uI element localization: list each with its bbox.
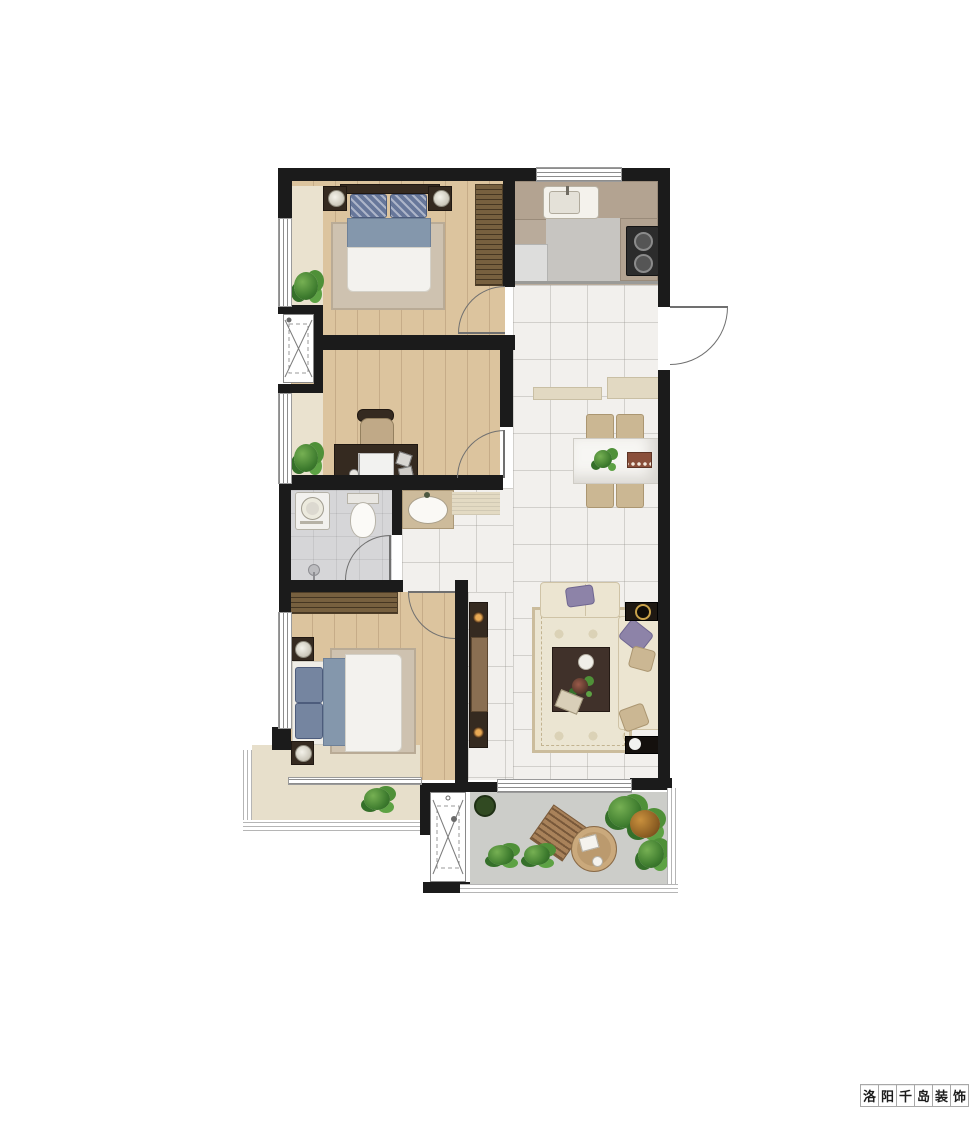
bathroom-door-leaf bbox=[389, 535, 391, 580]
bed-master-duvet bbox=[345, 654, 402, 752]
utility-shaft-south bbox=[430, 792, 466, 882]
washer-drum-icon bbox=[301, 497, 324, 520]
wall-bedrooms-divider bbox=[317, 335, 515, 350]
nightstand-lamp-icon bbox=[433, 190, 450, 207]
terrace-bush bbox=[524, 845, 550, 865]
wall-west-mid bbox=[279, 482, 291, 612]
kitchen-center-floor bbox=[546, 218, 620, 281]
coffee-table-plate-icon bbox=[578, 654, 594, 670]
bay-window-study bbox=[278, 393, 292, 484]
kitchen-pass-line bbox=[513, 281, 658, 284]
wall-top-west bbox=[278, 168, 536, 181]
watermark-char: 阳 bbox=[878, 1084, 897, 1107]
sofa-pillow-purple bbox=[565, 584, 596, 608]
wall-corner-sw bbox=[272, 727, 291, 750]
washer-panel-icon bbox=[300, 521, 323, 524]
toilet-bowl bbox=[350, 502, 376, 538]
tea-tray bbox=[627, 452, 652, 468]
bay-plant bbox=[294, 272, 318, 300]
entry-door-leaf bbox=[670, 306, 728, 308]
bed-pillow bbox=[350, 194, 387, 218]
bed-north-duvet bbox=[347, 247, 431, 292]
wall-shaft-west-bottom bbox=[278, 384, 323, 393]
candle-lamp-icon bbox=[473, 727, 484, 738]
wall-bathroom-north bbox=[279, 475, 503, 490]
floor-plan-canvas: 洛 阳 千 岛 装 饰 bbox=[0, 0, 972, 1122]
balcony-plant bbox=[364, 788, 390, 810]
bed-pillow bbox=[295, 667, 323, 703]
wall-east-top bbox=[658, 168, 670, 307]
bedroom-master-door-leaf bbox=[408, 591, 455, 593]
nightstand-lamp-icon bbox=[295, 745, 312, 762]
terrace-pot bbox=[474, 795, 496, 817]
terrace-cup-icon bbox=[592, 856, 603, 867]
basin-faucet-icon bbox=[424, 492, 430, 498]
wash-basin bbox=[408, 496, 448, 524]
bed-master-blanket bbox=[323, 658, 347, 746]
window-master-balcony bbox=[288, 777, 422, 785]
wall-east-bottom-corner bbox=[630, 778, 672, 790]
nightstand-lamp-icon bbox=[295, 641, 312, 658]
brand-watermark: 洛 阳 千 岛 装 饰 bbox=[861, 1084, 969, 1107]
candle-lamp-icon bbox=[473, 612, 484, 623]
dining-chair bbox=[616, 480, 644, 508]
bed-pillow bbox=[295, 703, 323, 739]
coffee-table-flowers bbox=[572, 678, 588, 694]
watermark-char: 岛 bbox=[914, 1084, 933, 1107]
balcony-railing-west bbox=[243, 750, 252, 830]
kitchen-faucet-icon bbox=[566, 186, 569, 195]
wall-bathroom-east bbox=[392, 490, 402, 535]
window-master-west bbox=[278, 612, 292, 729]
watermark-char: 洛 bbox=[860, 1084, 879, 1107]
wall-master-north bbox=[279, 580, 403, 592]
terrace-bush bbox=[488, 845, 514, 865]
entry-doormat bbox=[607, 377, 660, 399]
dining-chair bbox=[586, 480, 614, 508]
balcony-railing-south bbox=[243, 820, 420, 831]
vanity-mat bbox=[452, 492, 500, 515]
dining-plant bbox=[594, 450, 612, 468]
utility-shaft-west bbox=[283, 314, 314, 383]
wall-corner-nw bbox=[278, 168, 292, 218]
wall-shaft-south-left bbox=[420, 783, 430, 835]
study-door-leaf bbox=[503, 430, 505, 478]
bedroom-north-door-leaf bbox=[458, 332, 505, 334]
nightstand-lamp-icon bbox=[328, 190, 345, 207]
stove-burner-icon bbox=[634, 232, 653, 251]
terrace-railing-south bbox=[460, 884, 678, 893]
side-table-lamp-icon bbox=[635, 604, 651, 620]
tv-cabinet-wood bbox=[471, 637, 488, 712]
bay-window-bedroom-north bbox=[278, 218, 292, 307]
wall-east-main bbox=[658, 370, 670, 782]
watermark-char: 饰 bbox=[950, 1084, 969, 1107]
entry-door-swing bbox=[670, 307, 728, 365]
window-living-terrace bbox=[497, 779, 632, 793]
balcony-floor bbox=[252, 745, 420, 828]
terrace-bush bbox=[630, 810, 660, 838]
bay-plant bbox=[294, 444, 318, 472]
watermark-char: 装 bbox=[932, 1084, 951, 1107]
wall-bedroom-north-east bbox=[503, 168, 515, 287]
watermark-char: 千 bbox=[896, 1084, 915, 1107]
terrace-railing-east bbox=[667, 788, 678, 893]
speaker-ball-icon bbox=[629, 738, 641, 750]
bed-north-blanket bbox=[347, 218, 431, 249]
wall-study-east bbox=[500, 350, 513, 427]
bed-pillow bbox=[390, 194, 427, 218]
terrace-bush bbox=[638, 840, 664, 868]
fridge bbox=[513, 244, 548, 283]
bed-north-headboard bbox=[340, 184, 440, 194]
kitchen-sink-basin bbox=[549, 191, 580, 214]
window-kitchen-north bbox=[536, 167, 622, 182]
wardrobe-north bbox=[475, 184, 503, 286]
stove-burner-icon bbox=[634, 254, 653, 273]
wall-master-east bbox=[455, 580, 468, 788]
wardrobe-master bbox=[290, 592, 398, 614]
hall-runner bbox=[533, 387, 602, 400]
open-book-icon bbox=[358, 453, 394, 476]
wall-terrace-nw bbox=[468, 782, 497, 792]
